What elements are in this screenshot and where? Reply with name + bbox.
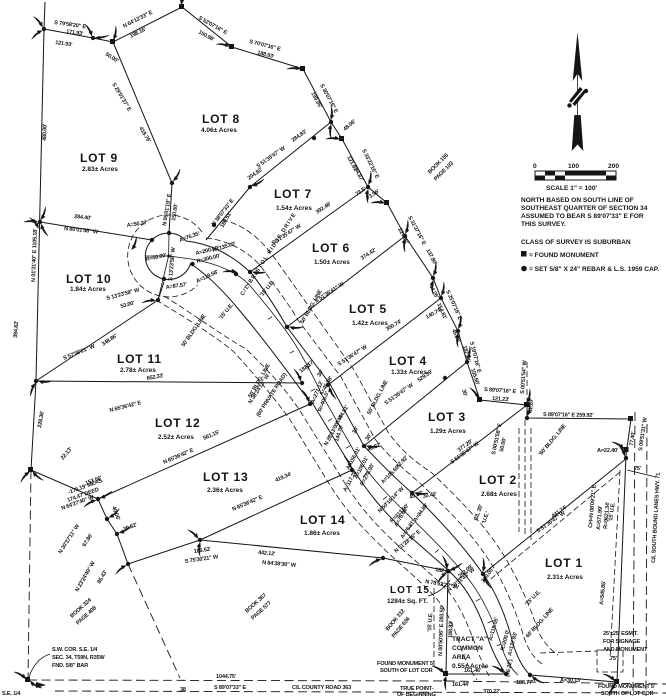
svg-text:75': 75'	[634, 466, 642, 472]
svg-text:100: 100	[568, 163, 579, 170]
svg-text:S 89'07'16" E 259.92': S 89'07'16" E 259.92'	[543, 412, 594, 419]
svg-text:4.06± Acres: 4.06± Acres	[201, 127, 237, 134]
svg-text:1.86± Acres: 1.86± Acres	[304, 530, 340, 537]
svg-text:1.50± Acres: 1.50± Acres	[314, 259, 350, 266]
svg-text:LOT 5: LOT 5	[349, 302, 387, 316]
svg-text:25'x25' ESM'T.: 25'x25' ESM'T.	[603, 631, 638, 637]
svg-text:TRACT "A": TRACT "A"	[452, 636, 487, 643]
svg-text:75': 75'	[610, 656, 618, 662]
svg-text:2.78± Acres: 2.78± Acres	[120, 367, 156, 374]
svg-text:2.68± Acres: 2.68± Acres	[481, 491, 517, 498]
svg-text:38: 38	[180, 687, 186, 693]
svg-text:1.42± Acres: 1.42± Acres	[352, 320, 388, 327]
svg-text:LOT 4: LOT 4	[389, 354, 427, 368]
svg-text:SOUTHEAST QUARTER OF SECTIO: SOUTHEAST QUARTER OF SECTION 34	[521, 205, 648, 212]
svg-text:AND MONUMENT: AND MONUMENT	[603, 647, 648, 653]
svg-text:1284± Sq. FT.: 1284± Sq. FT.	[387, 598, 428, 605]
svg-text:0: 0	[533, 163, 537, 170]
svg-text:LOT 15: LOT 15	[390, 585, 430, 596]
svg-text:S.E. 1/4: S.E. 1/4	[2, 691, 21, 696]
svg-text:FOUND MONUMENT 5': FOUND MONUMENT 5'	[377, 661, 435, 667]
svg-text:394.82': 394.82'	[13, 320, 20, 338]
svg-text:FOR SIGNAGE: FOR SIGNAGE	[603, 639, 640, 645]
svg-text:S 89'07'33" E: S 89'07'33" E	[214, 685, 246, 691]
svg-text:LOT 14: LOT 14	[300, 513, 345, 527]
svg-text:S.W. COR. S.E. 1/4: S.W. COR. S.E. 1/4	[52, 647, 98, 653]
svg-text:1044.75': 1044.75'	[216, 674, 237, 680]
svg-text:SCALE 1" = 100': SCALE 1" = 100'	[546, 185, 597, 192]
svg-text:COMMON: COMMON	[452, 645, 483, 652]
svg-text:C/L COUNTY ROAD 363: C/L COUNTY ROAD 363	[292, 685, 351, 691]
svg-text:LOT 1: LOT 1	[545, 556, 583, 570]
svg-text:A=30.13': A=30.13'	[560, 678, 582, 684]
svg-text:2.52± Acres: 2.52± Acres	[158, 434, 194, 441]
svg-text:2.83± Acres: 2.83± Acres	[82, 166, 118, 173]
svg-text:SEC. 34, T59N, R35W: SEC. 34, T59N, R35W	[52, 655, 105, 661]
svg-text:LOT 12: LOT 12	[155, 416, 200, 430]
svg-text:LOT 7: LOT 7	[274, 187, 312, 201]
svg-text:OF BEGINNING: OF BEGINNING	[397, 692, 436, 696]
svg-text:161.44': 161.44'	[452, 682, 470, 688]
svg-text:CLASS OF SURVEY IS SUBURBA: CLASS OF SURVEY IS SUBURBAN	[521, 239, 631, 246]
svg-text:LOT 3: LOT 3	[428, 410, 466, 424]
svg-text:188.83': 188.83'	[448, 620, 455, 638]
svg-text:1.54± Acres: 1.54± Acres	[276, 205, 312, 212]
svg-text:LOT 13: LOT 13	[203, 470, 248, 484]
svg-text:161.46': 161.46'	[464, 668, 482, 674]
svg-text:1.29± Acres: 1.29± Acres	[430, 428, 466, 435]
svg-text:LOT 8: LOT 8	[202, 112, 240, 126]
svg-text:LOT 11: LOT 11	[117, 352, 162, 366]
svg-text:480.00': 480.00'	[42, 123, 49, 141]
svg-text:NORTH BASED ON SOUTH LINE: NORTH BASED ON SOUTH LINE OF	[521, 197, 634, 204]
svg-text:LOT 6: LOT 6	[312, 241, 350, 255]
svg-text:LOT 9: LOT 9	[80, 151, 118, 165]
svg-text:= FOUND MONUMENT: = FOUND MONUMENT	[529, 252, 599, 259]
svg-text:FOUND MONUMENT 5': FOUND MONUMENT 5'	[598, 684, 656, 690]
svg-text:121.23': 121.23'	[492, 396, 510, 403]
svg-text:2.36± Acres: 2.36± Acres	[207, 487, 243, 494]
svg-text:LOT 2: LOT 2	[479, 473, 517, 487]
svg-text:200: 200	[608, 163, 619, 170]
svg-text:THIS SURVEY.: THIS SURVEY.	[521, 221, 566, 228]
svg-text:ASSUMED TO BEAR S 89'07'33: ASSUMED TO BEAR S 89'07'33" E FOR	[521, 213, 644, 220]
svg-text:FND. 5/8" BAR: FND. 5/8" BAR	[52, 663, 88, 669]
svg-text:AREA: AREA	[452, 654, 471, 661]
svg-text:SOUTH OF LOT COR: SOUTH OF LOT COR	[380, 668, 433, 674]
svg-text:1.84± Acres: 1.84± Acres	[70, 286, 106, 293]
svg-text:2.31± Acres: 2.31± Acres	[547, 574, 583, 581]
svg-text:370.22': 370.22'	[483, 689, 501, 695]
svg-text:A=22.40': A=22.40'	[597, 448, 619, 454]
svg-text:= SET 5/8" X 24" REBAR &: = SET 5/8" X 24" REBAR & L.S. 1959 CAP.	[529, 266, 659, 273]
svg-text:LOT 10: LOT 10	[66, 272, 111, 286]
svg-text:188.77': 188.77'	[516, 680, 534, 686]
